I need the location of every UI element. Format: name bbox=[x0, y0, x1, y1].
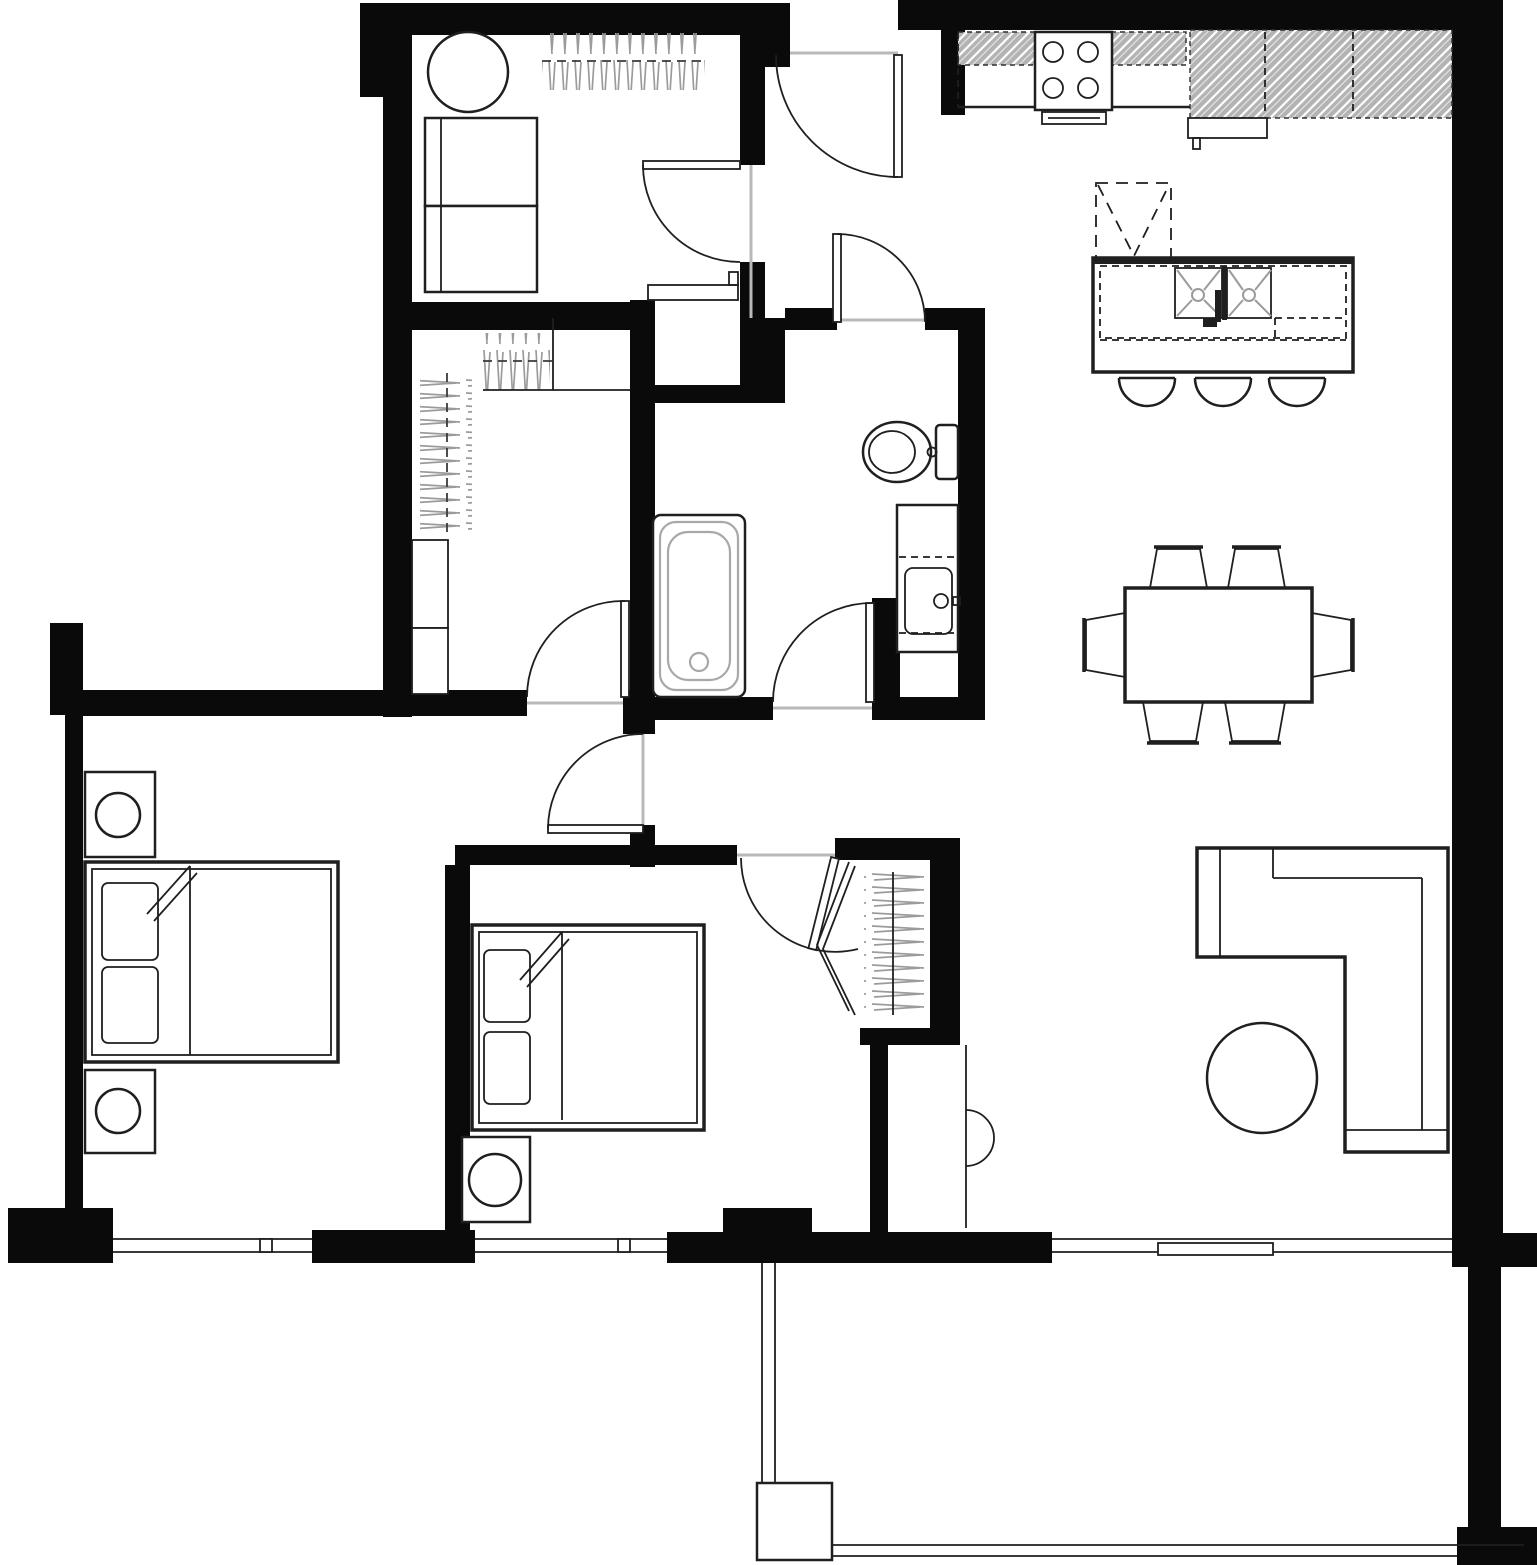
wall-balcony-column bbox=[1468, 1263, 1501, 1545]
walls bbox=[8, 0, 1537, 1565]
wall-wc-right bbox=[925, 308, 985, 330]
wall-bath-bottom-right bbox=[872, 697, 985, 720]
bathtub bbox=[653, 515, 745, 697]
entry-door-leaf bbox=[894, 55, 902, 177]
wall-bottom-pier bbox=[312, 1230, 475, 1263]
floor-plan: Two-bedroom apartment floor plan bbox=[0, 0, 1537, 1565]
fridge-counter-tick bbox=[1193, 138, 1200, 149]
wall-niche-bottom bbox=[648, 385, 745, 403]
wall-laundry-bottom bbox=[390, 302, 630, 330]
entry-door-swing-arc bbox=[776, 55, 898, 177]
water-heater bbox=[428, 32, 508, 112]
walk-in-closet bbox=[412, 318, 630, 694]
closet-door bbox=[527, 601, 629, 697]
bar-stool-2 bbox=[1195, 378, 1251, 406]
wall-closet2-right bbox=[930, 838, 960, 1045]
dining-table bbox=[1125, 588, 1312, 702]
bathroom-lower-door-leaf bbox=[866, 603, 874, 702]
laundry-door bbox=[643, 161, 740, 262]
bar-stools bbox=[1119, 378, 1325, 406]
bedroom-1 bbox=[85, 772, 338, 1153]
bed-1-pillow-2 bbox=[102, 967, 158, 1043]
balcony-post-lines bbox=[762, 1263, 775, 1483]
kitchen bbox=[958, 30, 1452, 406]
bedroom2-door-leaf bbox=[808, 857, 839, 950]
wall-column-foot bbox=[1457, 1527, 1537, 1565]
bar-stool-3 bbox=[1269, 378, 1325, 406]
bathroom bbox=[653, 422, 960, 697]
island-faucet bbox=[1215, 290, 1221, 322]
window-living-slider bbox=[1158, 1243, 1273, 1255]
dining-chair-top-1 bbox=[1150, 549, 1207, 588]
balcony bbox=[757, 1263, 1524, 1560]
bathroom-upper-door-leaf bbox=[833, 234, 841, 322]
refrigerator-tall-cabinets bbox=[1188, 30, 1452, 149]
fridge-hatch bbox=[1190, 30, 1452, 118]
bar-stool-1 bbox=[1119, 378, 1175, 406]
wall-bedroom2-top bbox=[455, 845, 737, 865]
bedroom1-door-swing-arc bbox=[548, 734, 643, 829]
bed-2-pillow-1 bbox=[484, 950, 530, 1022]
laundry-door-swing-arc bbox=[643, 165, 740, 262]
wall-bottom-center bbox=[667, 1232, 1052, 1263]
wall-laundry-right-upper bbox=[740, 35, 765, 165]
round-coffee-table bbox=[1207, 1023, 1317, 1133]
dining-chair-bottom-1 bbox=[1143, 702, 1203, 741]
balcony-railing bbox=[832, 1545, 1524, 1556]
wall-left bbox=[65, 713, 83, 1240]
bedroom-2 bbox=[462, 872, 924, 1222]
wall-bottom-bump bbox=[723, 1208, 812, 1234]
wall-top-left-pier bbox=[360, 3, 385, 97]
toilet bbox=[863, 422, 958, 482]
wall-bedroom1-top bbox=[65, 690, 527, 716]
window-bedroom2-mullion bbox=[618, 1239, 630, 1252]
cooktop bbox=[1035, 32, 1112, 124]
wall-right bbox=[1452, 0, 1503, 1263]
dining-chair-left bbox=[1086, 613, 1125, 677]
dishwasher-outline bbox=[1096, 183, 1171, 260]
window-bedroom1 bbox=[113, 1239, 312, 1252]
fridge-counter bbox=[1188, 118, 1267, 138]
bathroom-upper-door bbox=[833, 234, 925, 322]
closet-clothes-side bbox=[420, 375, 472, 530]
wall-se-foot bbox=[1452, 1233, 1537, 1267]
wall-closet-right bbox=[630, 300, 655, 722]
bathroom-lower-door-swing-arc bbox=[773, 603, 872, 702]
dining-chair-right bbox=[1312, 613, 1351, 677]
wall-top-b bbox=[898, 0, 1452, 30]
entry-door bbox=[776, 55, 902, 177]
closet-door-leaf bbox=[621, 601, 629, 697]
window-bedroom1-mullion bbox=[260, 1239, 272, 1252]
vanity bbox=[897, 505, 960, 652]
closet-shelf-1 bbox=[412, 540, 448, 628]
window-bedroom2 bbox=[475, 1239, 667, 1252]
utility-faucet bbox=[729, 272, 738, 285]
bifold-closet-door bbox=[817, 862, 855, 1015]
bifold-panel-lines bbox=[817, 862, 855, 1015]
toilet-tank bbox=[936, 425, 958, 479]
laundry-door-leaf bbox=[643, 161, 740, 169]
bed-1-pillow-1 bbox=[102, 883, 158, 960]
half-round-wall-element-arc bbox=[966, 1110, 994, 1166]
island-faucet-base bbox=[1203, 318, 1217, 327]
dishwasher bbox=[1096, 183, 1171, 260]
bathroom-upper-door-swing-arc bbox=[837, 234, 925, 322]
island bbox=[1093, 183, 1353, 406]
balcony-post bbox=[757, 1483, 832, 1560]
wall-sw-corner bbox=[8, 1208, 113, 1263]
wall-laundry-left bbox=[383, 25, 412, 717]
wall-top-a bbox=[360, 3, 790, 35]
dining-chair-bottom-2 bbox=[1225, 702, 1285, 741]
living-area bbox=[966, 848, 1448, 1228]
wall-left-pier bbox=[50, 623, 83, 715]
bedroom1-door-leaf bbox=[548, 825, 643, 833]
bed-2-pillow-2 bbox=[484, 1032, 530, 1104]
sink-divider bbox=[1222, 266, 1227, 320]
wall-wc-left bbox=[785, 308, 837, 330]
wall-closet2-top bbox=[835, 838, 943, 860]
closet-door-swing-arc bbox=[527, 601, 625, 697]
wall-bedroom2-right bbox=[870, 1030, 888, 1235]
dining-chair-top-2 bbox=[1228, 549, 1285, 588]
wall-chase bbox=[740, 318, 785, 403]
bedroom1-door bbox=[548, 734, 643, 833]
closet2-clothes bbox=[864, 872, 924, 1015]
dishwasher-v bbox=[1098, 185, 1169, 256]
utility-counter bbox=[648, 285, 738, 300]
wall-bath-right bbox=[958, 330, 985, 720]
bathroom-lower-door bbox=[773, 603, 874, 702]
closet-shelf-2 bbox=[412, 628, 448, 694]
dining-area bbox=[1084, 547, 1353, 743]
bathtub-outer bbox=[653, 515, 745, 697]
